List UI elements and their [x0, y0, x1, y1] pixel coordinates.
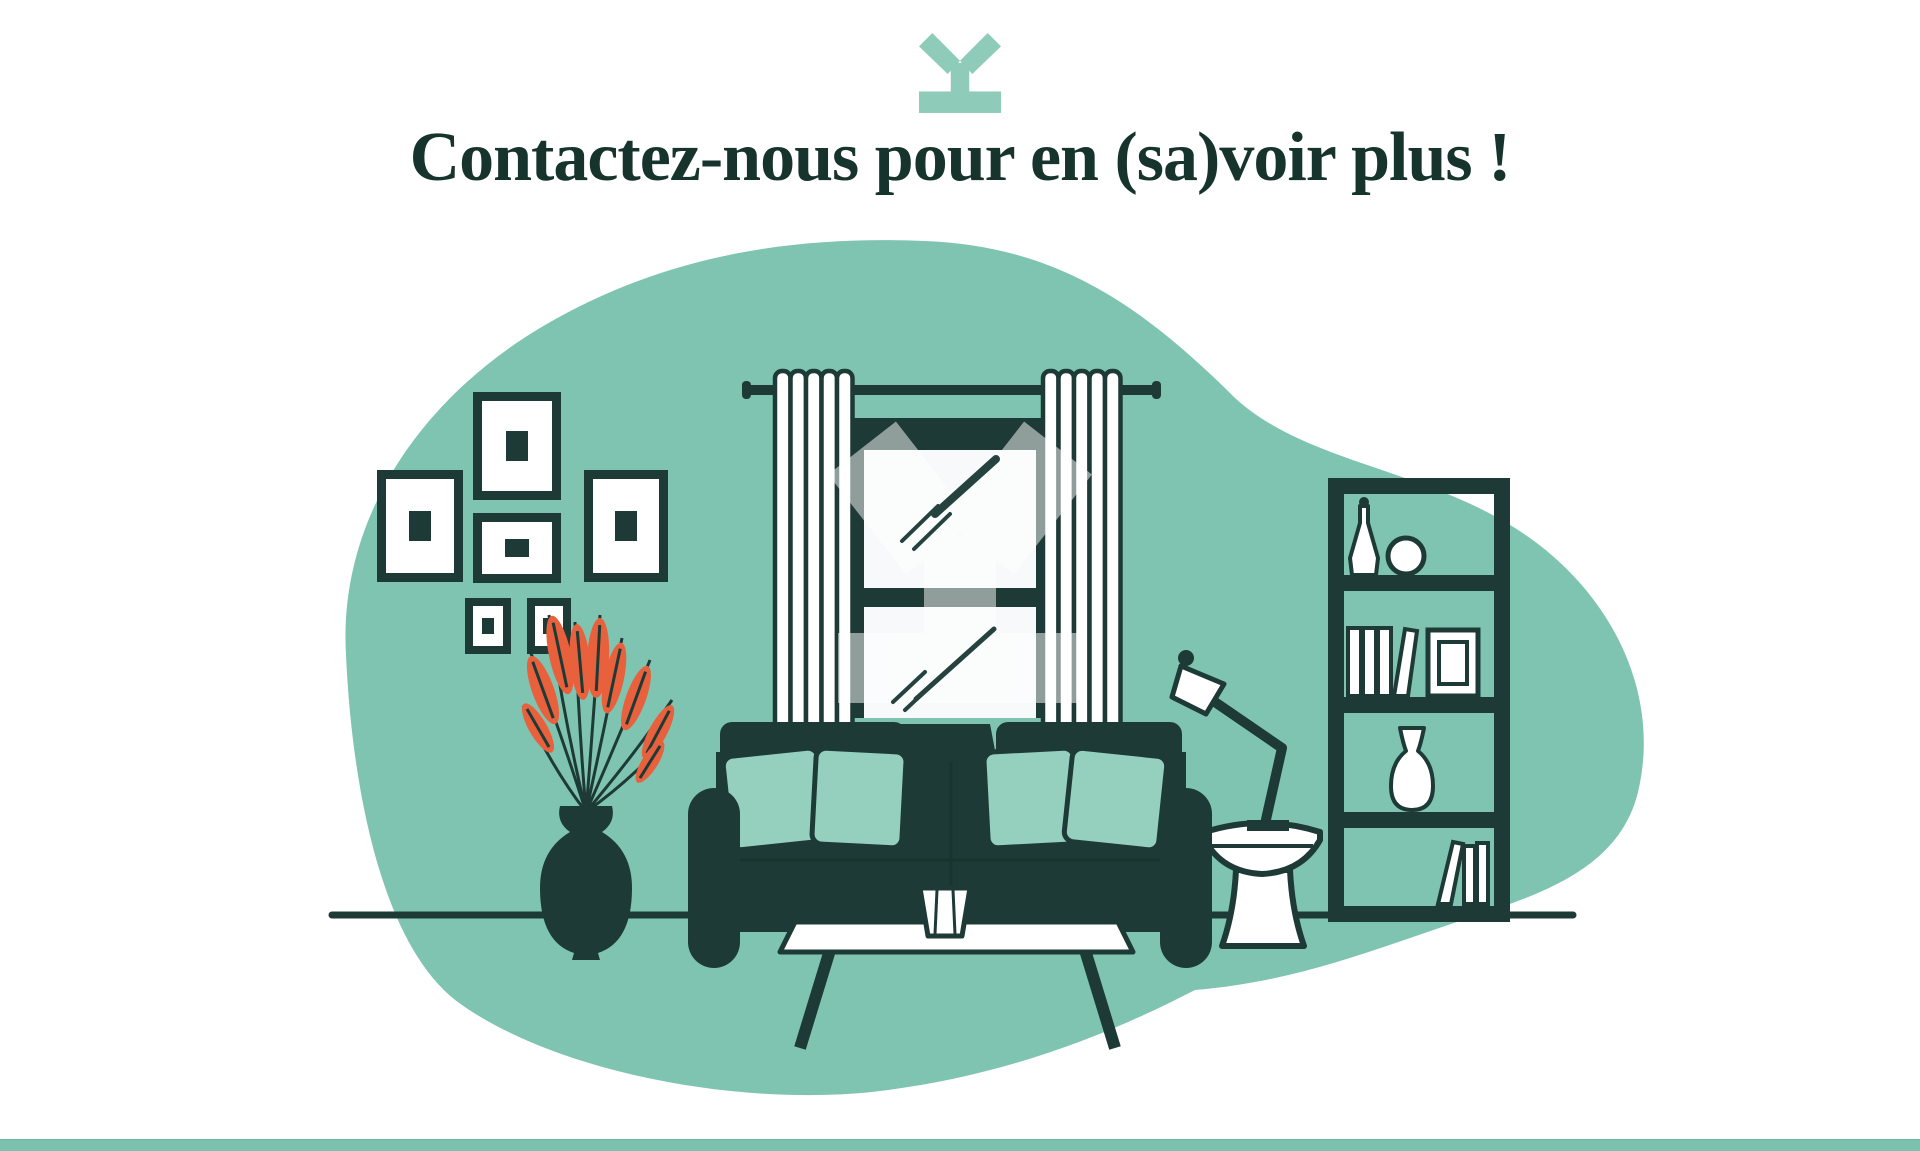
picture-frame	[473, 392, 561, 500]
picture-frame	[473, 513, 561, 583]
shelf-ball	[1388, 538, 1424, 574]
shelf-books-upper	[1348, 628, 1417, 696]
sofa-armrest-left	[688, 788, 740, 968]
y-logo-icon	[919, 33, 1001, 113]
picture-frame	[584, 470, 668, 582]
table-cup	[920, 888, 970, 936]
sofa-armrest-right	[1160, 788, 1212, 968]
footer-bar	[0, 1139, 1920, 1151]
picture-frame	[465, 598, 511, 654]
shelf-picture-frame	[1428, 630, 1478, 696]
picture-frame	[377, 470, 463, 582]
lamp-base	[1247, 820, 1289, 831]
page-title: Contactez-nous pour en (sa)voir plus !	[0, 118, 1920, 198]
